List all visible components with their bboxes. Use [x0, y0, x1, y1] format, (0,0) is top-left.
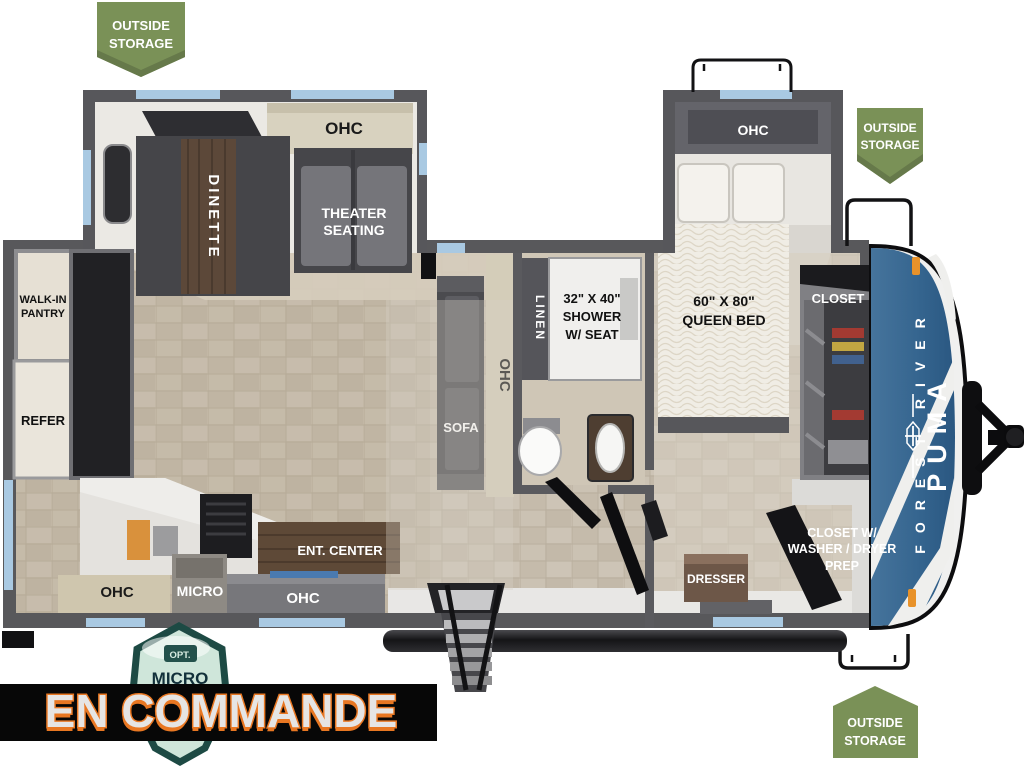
svg-text:OHC: OHC — [286, 590, 320, 607]
svg-text:60" X 80": 60" X 80" — [693, 293, 755, 309]
svg-text:OUTSIDE: OUTSIDE — [847, 716, 903, 730]
svg-text:REFER: REFER — [21, 413, 66, 428]
svg-text:CLOSET: CLOSET — [812, 291, 865, 306]
svg-text:W/ SEAT: W/ SEAT — [565, 327, 618, 342]
svg-text:LINEN: LINEN — [533, 295, 547, 341]
svg-text:STORAGE: STORAGE — [860, 138, 919, 152]
svg-text:EN COMMANDE: EN COMMANDE — [45, 685, 398, 737]
svg-text:PANTRY: PANTRY — [21, 308, 66, 320]
svg-text:QUEEN BED: QUEEN BED — [682, 312, 765, 328]
svg-text:WASHER / DRYER: WASHER / DRYER — [788, 542, 897, 556]
svg-text:THEATER: THEATER — [321, 205, 386, 221]
svg-text:PREP: PREP — [825, 559, 859, 573]
svg-text:SHOWER: SHOWER — [563, 309, 622, 324]
svg-text:CLOSET W/: CLOSET W/ — [807, 526, 877, 540]
svg-text:OUTSIDE: OUTSIDE — [112, 18, 170, 33]
svg-text:PUMA: PUMA — [922, 372, 952, 492]
svg-text:OHC: OHC — [737, 122, 768, 138]
svg-text:MICRO: MICRO — [177, 583, 224, 599]
svg-text:ENT. CENTER: ENT. CENTER — [297, 543, 383, 558]
svg-text:STORAGE: STORAGE — [844, 734, 906, 748]
svg-text:32" X 40": 32" X 40" — [563, 291, 620, 306]
svg-text:OPT.: OPT. — [169, 650, 190, 661]
svg-text:WALK-IN: WALK-IN — [19, 294, 66, 306]
svg-text:OUTSIDE: OUTSIDE — [863, 121, 916, 135]
svg-text:DRESSER: DRESSER — [687, 572, 745, 586]
svg-text:DINETTE: DINETTE — [205, 174, 222, 259]
svg-text:OHC: OHC — [100, 584, 134, 601]
svg-text:STORAGE: STORAGE — [109, 36, 173, 51]
svg-text:SEATING: SEATING — [323, 222, 384, 238]
svg-text:OHC: OHC — [325, 119, 363, 138]
